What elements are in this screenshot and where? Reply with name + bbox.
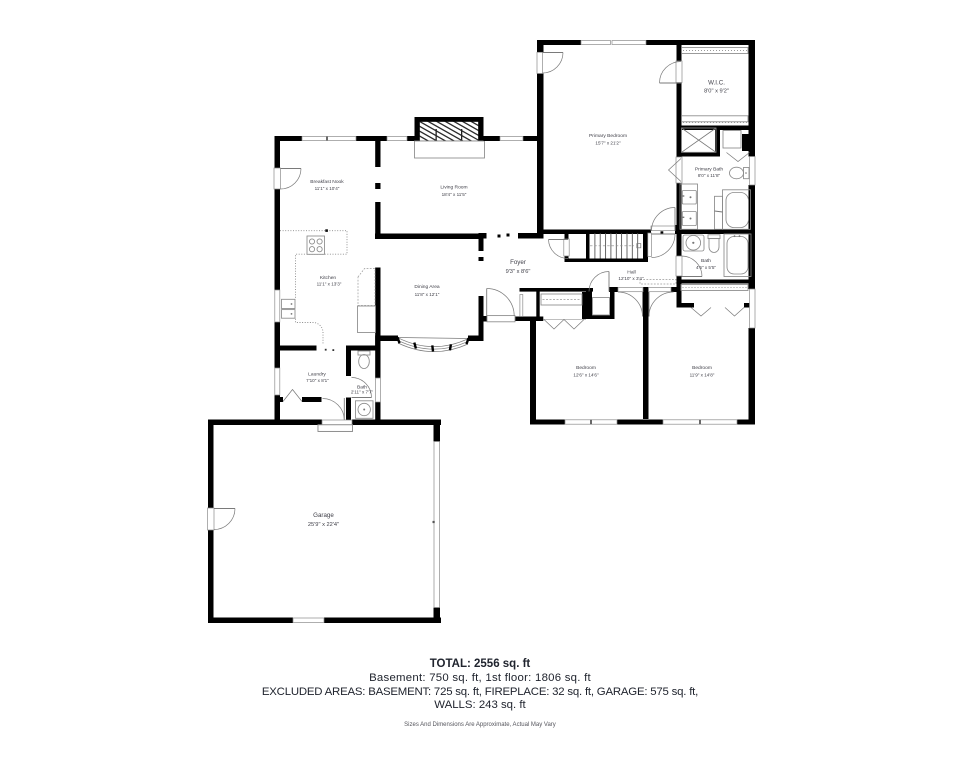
svg-text:Primary Bath: Primary Bath [695, 167, 724, 173]
svg-text:8'0" x 11'8": 8'0" x 11'8" [698, 173, 721, 178]
svg-text:Basement: 750 sq. ft, 1st floo: Basement: 750 sq. ft, 1st floor: 1806 sq… [369, 672, 591, 684]
svg-text:EXCLUDED AREAS: BASEMENT: 725: EXCLUDED AREAS: BASEMENT: 725 sq. ft, FI… [262, 686, 698, 698]
svg-text:12'6" x 14'6": 12'6" x 14'6" [573, 372, 599, 377]
svg-text:18'4" x 11'5": 18'4" x 11'5" [442, 192, 467, 197]
svg-text:Bedroom: Bedroom [692, 365, 712, 371]
svg-text:25'9" x 22'4": 25'9" x 22'4" [308, 522, 339, 528]
svg-text:2'11" x 7'7": 2'11" x 7'7" [351, 390, 374, 395]
svg-text:11'1" x 13'3": 11'1" x 13'3" [317, 281, 342, 286]
svg-text:Breakfast Nook: Breakfast Nook [310, 179, 344, 185]
svg-text:9'3" x 8'6": 9'3" x 8'6" [506, 269, 531, 275]
svg-text:12'10" x 3'4": 12'10" x 3'4" [618, 276, 644, 281]
svg-text:Sizes And Dimensions Are Appro: Sizes And Dimensions Are Approximate, Ac… [404, 722, 556, 728]
svg-text:Bedroom: Bedroom [576, 365, 596, 371]
svg-text:W.I.C.: W.I.C. [708, 80, 725, 87]
svg-text:7'10" x 8'1": 7'10" x 8'1" [306, 378, 329, 383]
svg-text:11'9" x 14'8": 11'9" x 14'8" [690, 372, 715, 377]
svg-text:Living Room: Living Room [440, 185, 467, 191]
svg-text:4'6" x 5'5": 4'6" x 5'5" [696, 265, 716, 270]
svg-text:11'1" x 10'4": 11'1" x 10'4" [315, 186, 340, 191]
svg-text:TOTAL: 2556 sq. ft: TOTAL: 2556 sq. ft [430, 658, 531, 670]
svg-text:Foyer: Foyer [510, 259, 526, 266]
svg-text:Laundry: Laundry [308, 372, 326, 378]
svg-text:WALLS: 243 sq. ft: WALLS: 243 sq. ft [434, 699, 526, 711]
svg-text:Kitchen: Kitchen [320, 275, 337, 281]
svg-text:Dining Area: Dining Area [414, 284, 440, 290]
svg-text:Primary Bedroom: Primary Bedroom [589, 133, 627, 139]
svg-text:Garage: Garage [313, 512, 334, 519]
svg-text:11'8" x 12'1": 11'8" x 12'1" [415, 292, 440, 297]
svg-text:Bath: Bath [701, 258, 711, 264]
svg-text:8'0" x 9'2": 8'0" x 9'2" [704, 88, 729, 94]
svg-text:Hall: Hall [627, 270, 635, 276]
svg-text:15'7" x 21'2": 15'7" x 21'2" [595, 141, 621, 146]
